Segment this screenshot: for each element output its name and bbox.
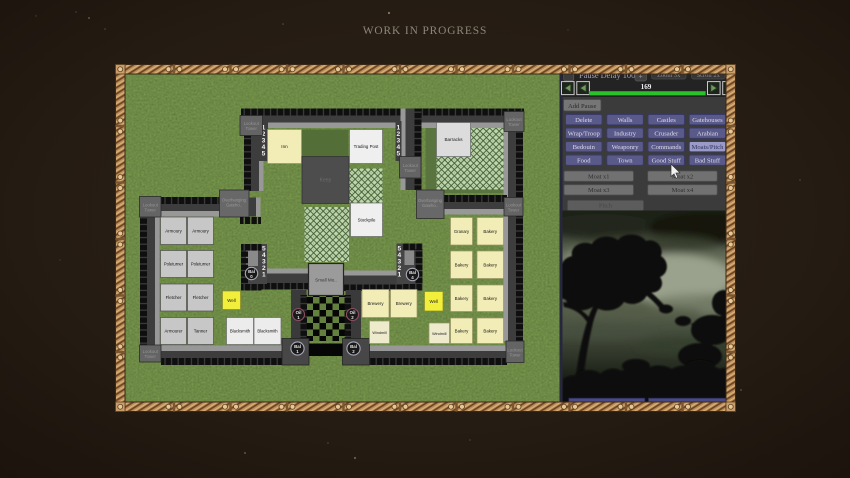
svg-text:Blacksmith: Blacksmith — [257, 329, 278, 334]
svg-text:Poleturner: Poleturner — [191, 262, 211, 267]
svg-text:Well: Well — [430, 299, 438, 304]
svg-text:Moat x4: Moat x4 — [672, 187, 694, 194]
svg-text:Walls: Walls — [618, 117, 633, 124]
svg-text:Food: Food — [577, 157, 591, 164]
svg-text:Gatehouses: Gatehouses — [692, 117, 723, 124]
svg-text:Pitch: Pitch — [599, 203, 613, 210]
svg-text:Gateho..: Gateho.. — [422, 203, 438, 208]
svg-text:Barracks: Barracks — [444, 137, 463, 142]
svg-text:Bakery: Bakery — [483, 229, 497, 234]
svg-text:169: 169 — [641, 83, 652, 91]
svg-text:WORK IN PROGRESS: WORK IN PROGRESS — [363, 25, 488, 37]
svg-text:Arabian: Arabian — [697, 130, 719, 137]
svg-text:Inn: Inn — [281, 144, 288, 149]
svg-text:Granary: Granary — [454, 229, 470, 234]
svg-text:Tower: Tower — [246, 126, 258, 131]
svg-text:Armourer: Armourer — [165, 329, 183, 334]
svg-text:Moat x1: Moat x1 — [588, 173, 609, 180]
svg-text:Tower: Tower — [508, 122, 520, 127]
svg-text:1: 1 — [397, 272, 401, 279]
svg-text:Small Mo..: Small Mo.. — [315, 278, 337, 283]
svg-text:Bakery: Bakery — [455, 296, 469, 301]
svg-text:Town: Town — [618, 157, 634, 164]
svg-text:Windmill: Windmill — [432, 332, 447, 336]
svg-text:Tower: Tower — [509, 352, 521, 357]
svg-text:Delete: Delete — [575, 117, 592, 124]
svg-text:Bakery: Bakery — [483, 328, 497, 333]
svg-text:Stockpile: Stockpile — [358, 217, 376, 222]
svg-text:Castles: Castles — [657, 117, 676, 124]
svg-text:Moats/Pitch: Moats/Pitch — [692, 144, 725, 151]
svg-text:Add Pause: Add Pause — [568, 103, 596, 110]
svg-text:Industry: Industry — [614, 130, 637, 137]
svg-text:Tower: Tower — [145, 354, 157, 359]
svg-text:Blacksmith: Blacksmith — [230, 329, 251, 334]
svg-text:Bakery: Bakery — [483, 296, 497, 301]
svg-text:Tower: Tower — [405, 168, 417, 173]
svg-text:Bakery: Bakery — [455, 262, 469, 267]
svg-text:Gateho..: Gateho.. — [226, 203, 242, 208]
svg-text:Brewery: Brewery — [367, 301, 384, 306]
svg-text:Well: Well — [227, 298, 235, 303]
svg-text:Bakery: Bakery — [483, 262, 497, 267]
svg-text:Bedouin: Bedouin — [573, 144, 596, 151]
svg-text:Armoury: Armoury — [165, 228, 182, 233]
svg-text:Moat x3: Moat x3 — [588, 187, 609, 194]
svg-text:Windmill: Windmill — [372, 331, 387, 335]
svg-text:1: 1 — [262, 272, 266, 279]
svg-text:Fletcher: Fletcher — [166, 295, 182, 300]
svg-text:Tower: Tower — [145, 207, 157, 212]
svg-text:Fletcher: Fletcher — [193, 295, 209, 300]
svg-text:Bakery: Bakery — [455, 328, 469, 333]
svg-text:Trading Post: Trading Post — [354, 144, 380, 149]
svg-text:5: 5 — [262, 151, 266, 158]
svg-text:Commands: Commands — [651, 144, 681, 151]
svg-text:Armoury: Armoury — [192, 228, 209, 233]
svg-text:+: + — [639, 74, 643, 81]
svg-text:Tower: Tower — [508, 207, 520, 212]
svg-text:Good Stuff: Good Stuff — [652, 157, 682, 164]
svg-text:Wrap/Troop: Wrap/Troop — [568, 130, 601, 137]
svg-text:Brewery: Brewery — [396, 301, 413, 306]
svg-text:Weaponry: Weaponry — [612, 144, 640, 151]
svg-text:Keep: Keep — [320, 178, 332, 184]
svg-text:Tanner: Tanner — [194, 329, 208, 334]
svg-text:Bad Stuff: Bad Stuff — [695, 157, 721, 164]
svg-text:Poleturner: Poleturner — [164, 262, 184, 267]
svg-text:Crusader: Crusader — [654, 130, 679, 137]
